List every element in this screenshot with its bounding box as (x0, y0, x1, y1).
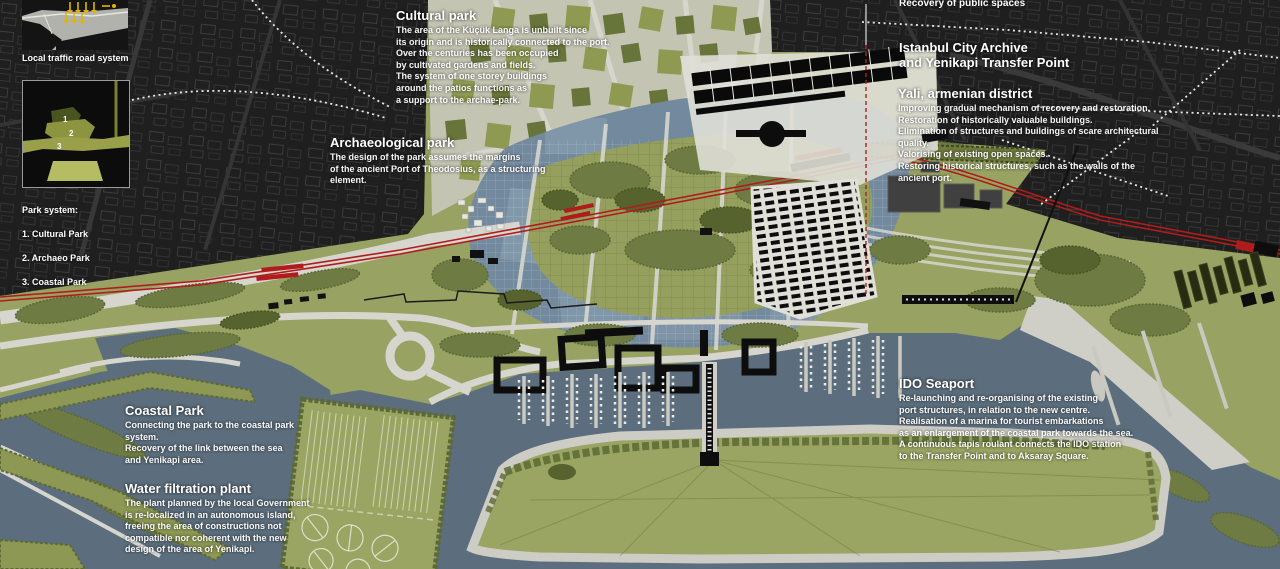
annotation-city-archive: Istanbul City Archive and Yenikapi Trans… (899, 40, 1139, 72)
inset-traffic-caption: Local traffic road system (22, 52, 129, 64)
cultural-park-body: The area of the Küçük Langa is unbuilt s… (396, 25, 616, 106)
tapis-roulant-pier (700, 362, 719, 466)
archaeological-park-body: The design of the park assumes the margi… (330, 152, 570, 187)
water-filtration-title: Water filtration plant (125, 481, 335, 496)
annotation-coastal-park: Coastal Park Connecting the park to the … (125, 403, 325, 466)
inset-label-2: 2 (69, 129, 74, 138)
yali-body: Improving gradual mechanism of recovery … (898, 103, 1163, 184)
ido-seaport-title: IDO Seaport (899, 376, 1149, 391)
annotation-ido-seaport: IDO Seaport Re-launching and re-organisi… (899, 376, 1149, 463)
park-system-item-2: 2. Archaeo Park (22, 253, 90, 263)
inset-park-system-caption: Park system: 1. Cultural Park 2. Archaeo… (22, 192, 90, 288)
inset-traffic-map (22, 0, 128, 50)
yali-district-blocks (752, 180, 876, 318)
yali-title: Yali, armenian district (898, 86, 1163, 101)
inset-park-system: 1 2 3 (22, 80, 130, 188)
park-system-item-3: 3. Coastal Park (22, 277, 87, 287)
coastal-park-body: Connecting the park to the coastal park … (125, 420, 325, 466)
annotation-archaeological-park: Archaeological park The design of the pa… (330, 135, 570, 187)
annotation-recovery: Recovery of public spaces (899, 0, 1025, 12)
inset-label-3: 3 (57, 142, 62, 151)
masterplan-board: Local traffic road system 1 2 3 Park sys… (0, 0, 1280, 569)
coastal-park-title: Coastal Park (125, 403, 325, 418)
park-system-title: Park system: (22, 205, 78, 215)
cultural-park-title: Cultural park (396, 8, 616, 23)
city-archive-title: Istanbul City Archive and Yenikapi Trans… (899, 40, 1139, 70)
park-system-item-1: 1. Cultural Park (22, 229, 88, 239)
annotation-cultural-park: Cultural park The area of the Küçük Lang… (396, 8, 616, 106)
water-filtration-body: The plant planned by the local Governmen… (125, 498, 335, 556)
recovery-title: Recovery of public spaces (899, 0, 1025, 10)
ido-seaport-body: Re-launching and re-organising of the ex… (899, 393, 1149, 463)
archaeological-park-title: Archaeological park (330, 135, 570, 150)
annotation-water-filtration: Water filtration plant The plant planned… (125, 481, 335, 556)
annotation-yali: Yali, armenian district Improving gradua… (898, 86, 1163, 184)
inset-label-1: 1 (63, 115, 68, 124)
